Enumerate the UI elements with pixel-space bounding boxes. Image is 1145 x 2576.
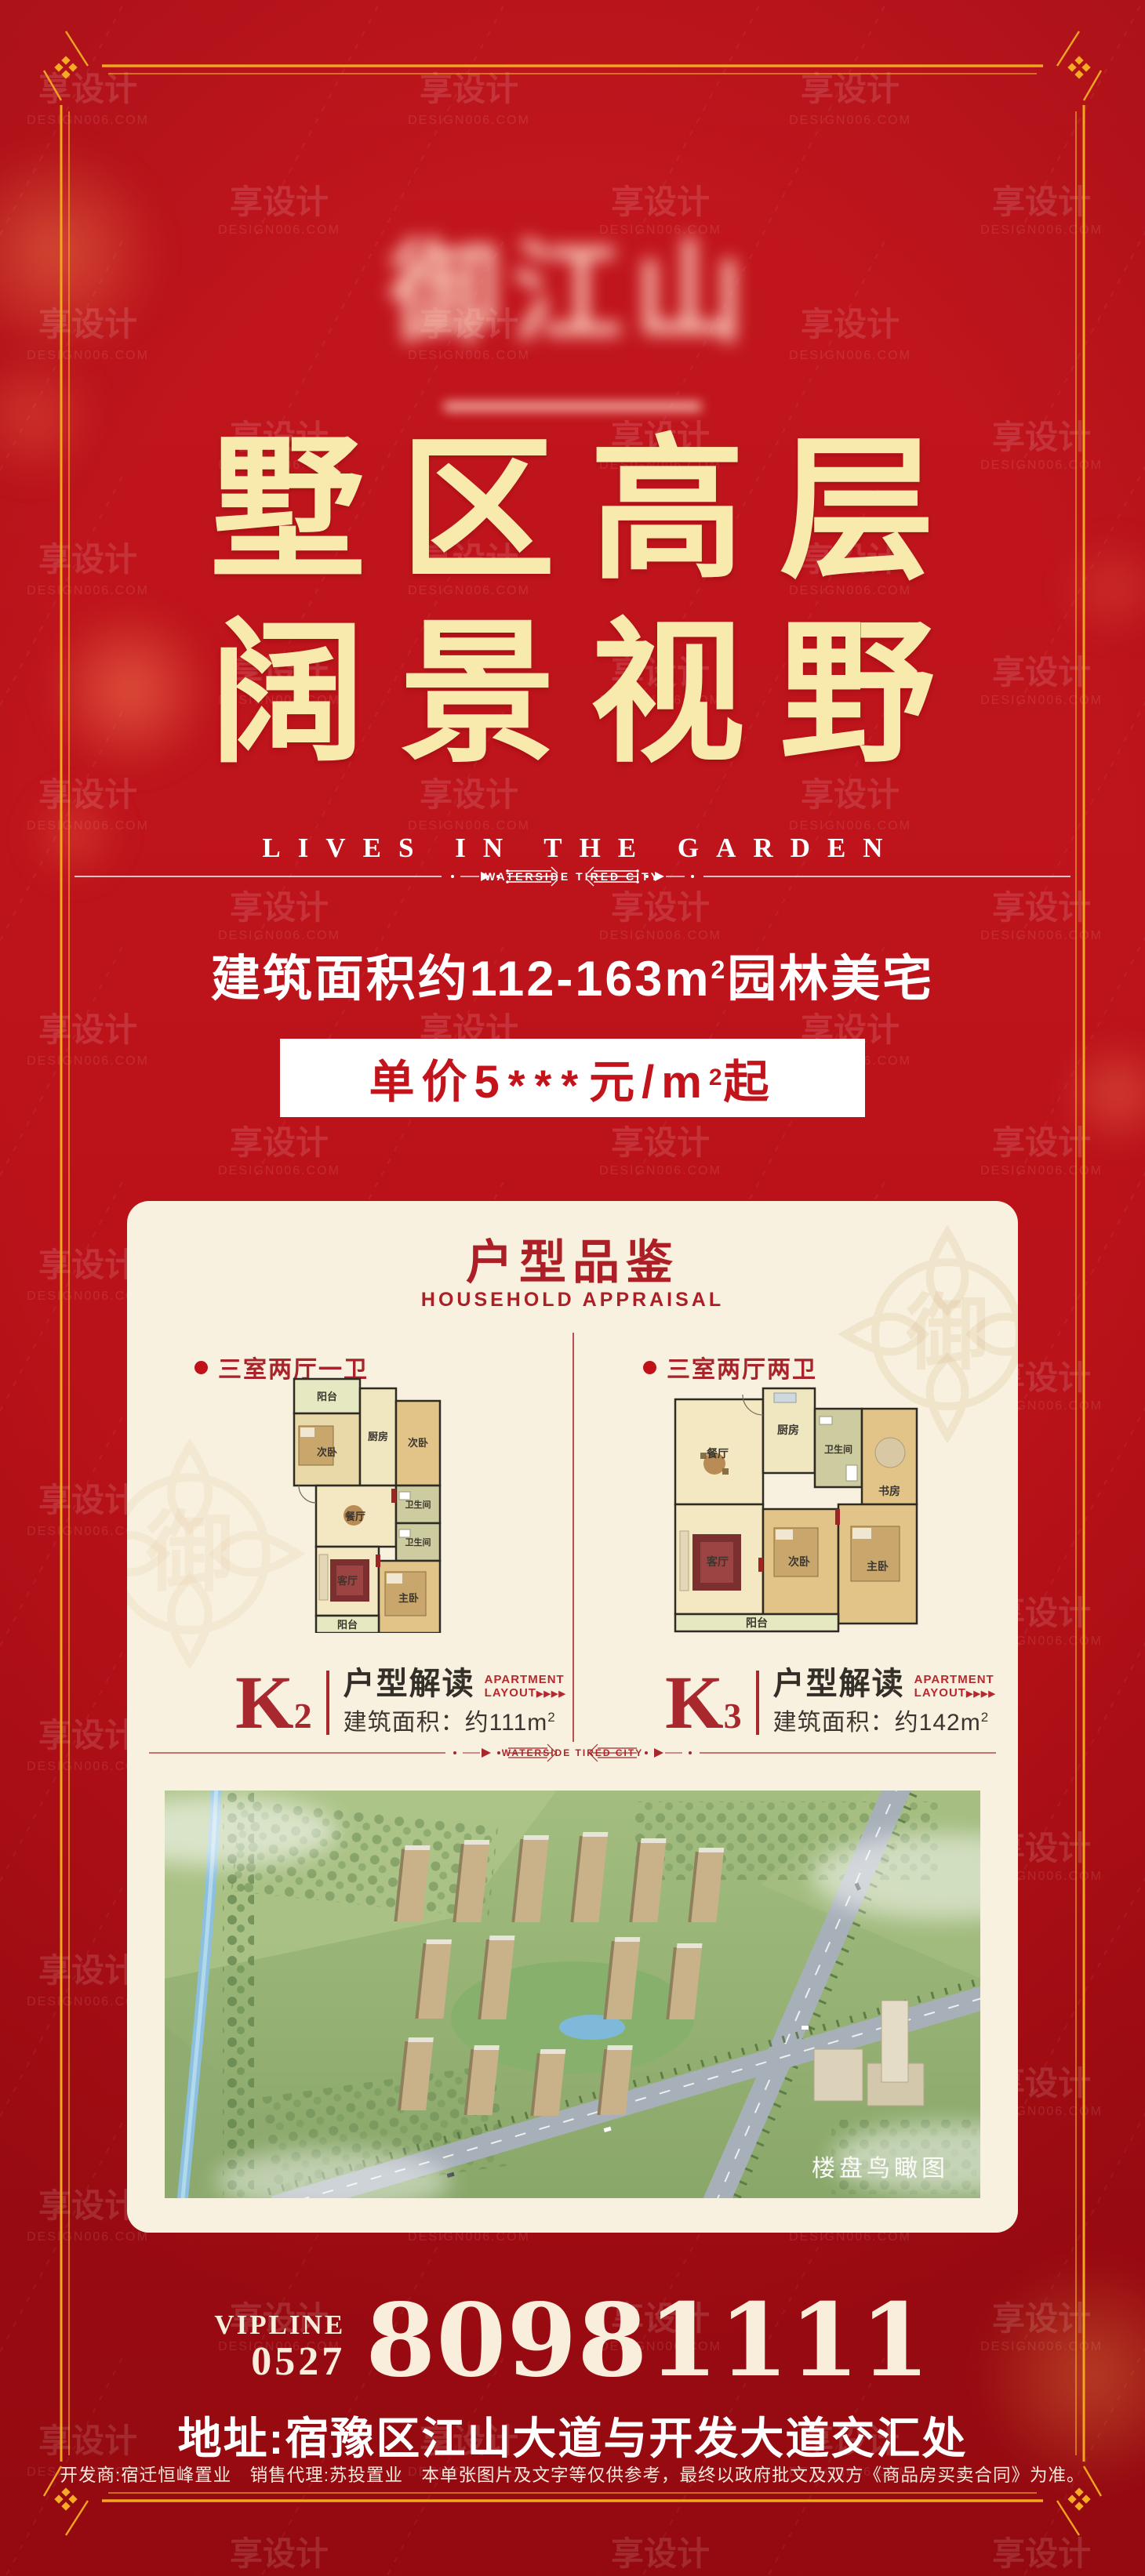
svg-text:厨房: 厨房 [368, 1431, 388, 1442]
contact-block: VIPLINE 0527 80981111 [0, 2291, 1145, 2391]
svg-text:主卧: 主卧 [398, 1592, 419, 1604]
svg-text:卫生间: 卫生间 [824, 1443, 852, 1455]
svg-text:次卧: 次卧 [317, 1446, 337, 1458]
plan-k2-area: 建筑面积：约111m2 [343, 1703, 566, 1737]
price-part1: 单价5 [369, 1045, 506, 1111]
price-part3: 起 [724, 1045, 776, 1111]
price-sup: 2 [709, 1065, 724, 1091]
svg-text:阳台: 阳台 [337, 1619, 358, 1631]
svg-text:客厅: 客厅 [706, 1555, 729, 1568]
main-title-line1: 墅区高层 [0, 433, 1145, 588]
plan-k3-id: K3 [665, 1671, 742, 1735]
price-part2: 元/m [589, 1045, 709, 1111]
poster: 享设计 DESIGN006.COM 享设计 DESIGN006.COM [0, 0, 1145, 2576]
plan-k2-name: 户型解读 [343, 1668, 475, 1700]
card-title: 户型品鉴 [0, 1225, 1145, 1293]
svg-text:书房: 书房 [878, 1485, 900, 1497]
svg-text:次卧: 次卧 [788, 1555, 810, 1568]
bullet-icon [194, 1361, 208, 1374]
svg-text:餐厅: 餐厅 [706, 1447, 729, 1460]
card-divider-label: WATERSIDE TIRED CITY [502, 1747, 643, 1758]
vipline-area-code: 0527 [251, 2341, 345, 2384]
aerial-caption: 楼盘鸟瞰图 [812, 2156, 949, 2182]
brand-logo-subtitle-blur [443, 401, 702, 412]
main-title-line2: 阔景视野 [0, 616, 1145, 771]
arrows-icon: ▶▶▶▶ [966, 1689, 996, 1699]
svg-text:卫生间: 卫生间 [405, 1537, 431, 1547]
area-range-sup: 2 [711, 956, 727, 984]
plan-k2-caption: K2 户型解读 APARTMENT LAYOUT▶▶▶▶ 建筑面积：约111m2 [235, 1668, 566, 1737]
plan-k2-id: K2 [235, 1671, 312, 1735]
area-range-text: 建筑面积约112-163m2园林美宅 [0, 939, 1145, 1010]
svg-text:次卧: 次卧 [408, 1437, 428, 1449]
plan-k3-area: 建筑面积：约142m2 [773, 1703, 996, 1737]
svg-text:主卧: 主卧 [867, 1560, 889, 1573]
card-column-divider [572, 1333, 574, 1753]
vipline-label: VIPLINE [214, 2309, 345, 2341]
area-range-part1: 建筑面积约112-163m [211, 952, 711, 1007]
bullet-icon [643, 1361, 656, 1374]
caption-divider-bar [756, 1671, 759, 1735]
plan-k2-name-en: APARTMENT LAYOUT▶▶▶▶ [485, 1674, 566, 1700]
plan-k3-name-en: APARTMENT LAYOUT▶▶▶▶ [914, 1674, 996, 1700]
disclaimer-text: 开发商:宿迁恒峰置业 销售代理:苏投置业 本单张图片及文字等仅供参考，最终以政府… [0, 2462, 1145, 2487]
plan-k3-name: 户型解读 [773, 1668, 905, 1700]
svg-text:厨房: 厨房 [777, 1424, 799, 1436]
ornament-divider: WATERSIDE TIRED CITY [75, 859, 1070, 894]
vipline-labels: VIPLINE 0527 [214, 2298, 345, 2384]
floorplan-k2: 阳台 次卧 厨房 次卧 餐厅 卫生间 卫生间 客厅 主卧 阳台 [285, 1377, 442, 1633]
aerial-view-image: 楼盘鸟瞰图 [165, 1791, 980, 2198]
address-line: 地址:宿豫区江山大道与开发大道交汇处 [0, 2404, 1145, 2467]
card-ornament-divider: WATERSIDE TIRED CITY [149, 1736, 996, 1770]
floorplan-k3: 餐厅 厨房 卫生间 书房 客厅 次卧 主卧 阳台 [669, 1377, 923, 1633]
area-range-part2: 园林美宅 [727, 952, 934, 1007]
divider-label: WATERSIDE TIRED CITY [485, 870, 660, 883]
ornament-char: 御 [145, 1504, 233, 1602]
price-stars: *** [508, 1060, 587, 1111]
svg-text:餐厅: 餐厅 [344, 1511, 365, 1522]
brand-logo: 御江山 [0, 202, 1145, 364]
svg-text:阳台: 阳台 [317, 1391, 337, 1402]
svg-text:卫生间: 卫生间 [405, 1499, 431, 1510]
plan-k3-caption: K3 户型解读 APARTMENT LAYOUT▶▶▶▶ 建筑面积：约142m2 [665, 1668, 996, 1737]
svg-text:阳台: 阳台 [746, 1616, 768, 1629]
price-banner: 单价5***元/m2起 [280, 1039, 865, 1117]
phone-number: 80981111 [365, 2291, 931, 2391]
arrows-icon: ▶▶▶▶ [536, 1689, 566, 1699]
caption-divider-bar [326, 1671, 329, 1735]
card-subtitle: HOUSEHOLD APPRAISAL [0, 1289, 1145, 1312]
svg-text:客厅: 客厅 [337, 1575, 358, 1587]
